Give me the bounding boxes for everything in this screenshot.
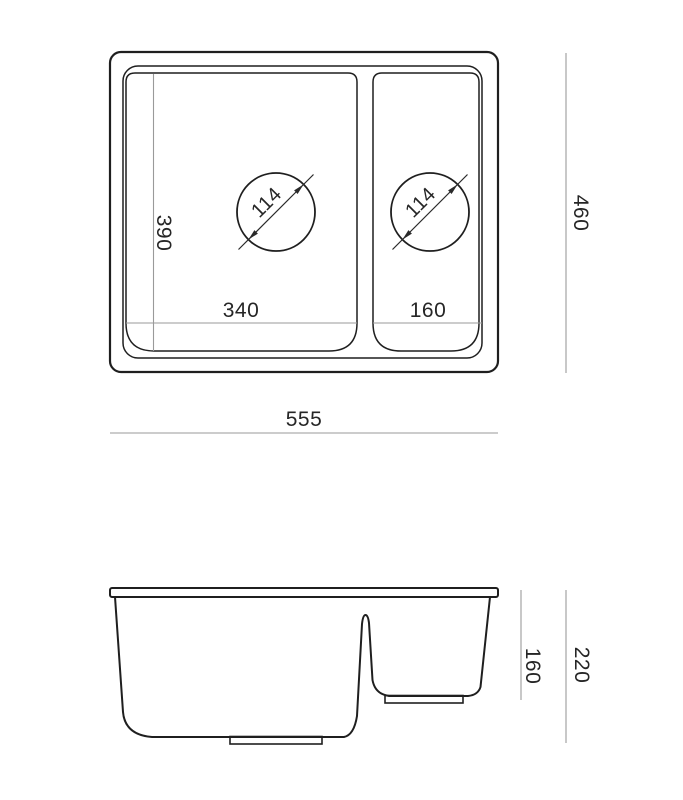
sink-flange — [110, 588, 498, 597]
dim-label-second-bowl-width: 160 — [410, 299, 447, 322]
sink-outline — [110, 52, 498, 372]
dim-label-main-bowl-width: 340 — [223, 299, 260, 322]
sink-technical-drawing: 114 114 390 340 160 460 555 — [0, 0, 683, 800]
sink-profile — [115, 597, 490, 737]
top-view: 114 114 390 340 160 460 555 — [110, 52, 592, 433]
dim-label-overall-width: 555 — [286, 408, 323, 431]
dim-label-overall-height: 220 — [570, 647, 593, 684]
dim-label-overall-depth: 460 — [569, 195, 592, 232]
side-view: 160 220 — [110, 588, 593, 744]
dim-label-second-bowl-height: 160 — [521, 648, 544, 685]
sink-technical-drawing-page: 114 114 390 340 160 460 555 — [0, 0, 683, 800]
dim-label-main-bowl-depth: 390 — [152, 215, 175, 252]
